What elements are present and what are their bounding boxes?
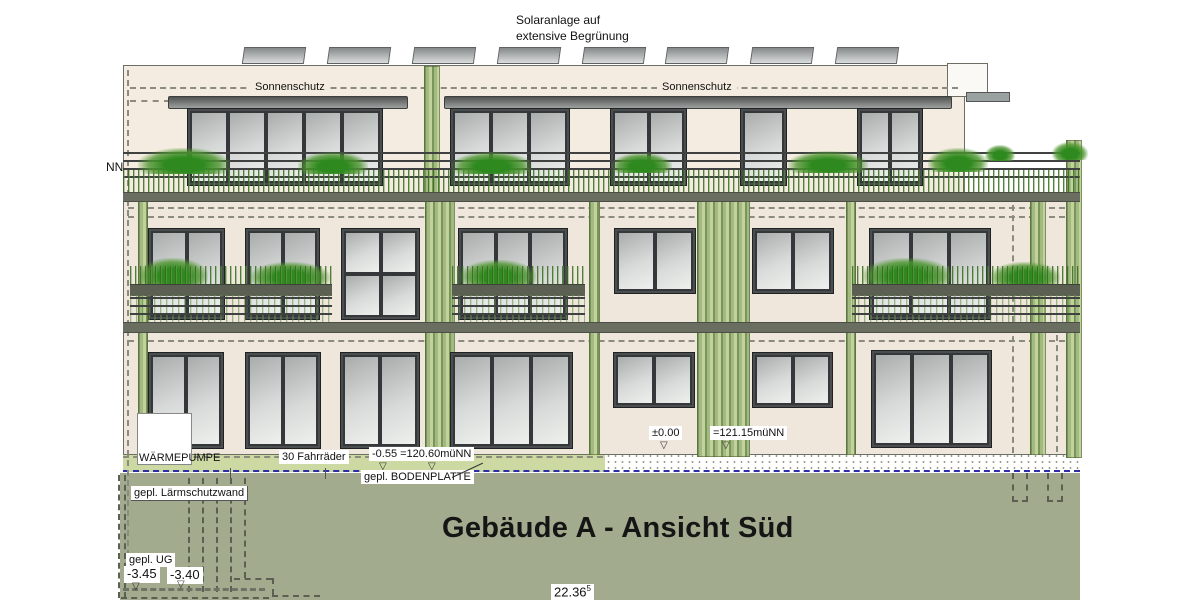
shrub-plant [138,148,230,174]
heat-pump-label: WÄRMEPUMPE [139,451,220,465]
sunshade-label-right: Sonnenschutz [657,80,737,94]
bikes-label: 30 Fahrräder [279,450,349,464]
sunshade-label-left: Sonnenschutz [250,80,330,94]
roof-edge-bar [966,92,1010,102]
ceiling-line [128,216,1075,218]
solar-panel [242,47,306,64]
window [340,352,420,449]
level-zero-label: ±0.00 [649,426,682,440]
roof-note-line1: Solaranlage auf [516,13,600,27]
level-marker-icon: ▽ [177,580,185,590]
level-marker-icon: ▽ [132,582,140,592]
window [450,352,573,449]
level-ground-floor-label: -0.55 =120.60müNN [369,447,474,461]
shrub-plant [928,148,988,172]
solar-panel [750,47,814,64]
balcony-railing [130,297,332,320]
base-plate-label: gepl. BODENPLATTE [361,470,474,484]
noise-wall-label: gepl. Lärmschutzwand [131,486,248,501]
roof-note: Solaranlage auf extensive Begrünung [516,13,629,44]
underground-step [234,578,272,580]
ceiling-line [128,207,1075,209]
window [752,352,833,408]
window [613,352,695,408]
solar-panel [327,47,391,64]
solar-panel [412,47,476,64]
solar-panel [835,47,899,64]
window [341,228,420,320]
foundation-plate [605,452,1080,472]
shrub-plant [1052,142,1088,160]
floor-slab [123,192,1080,202]
window [752,228,834,294]
basement-bottom-line [121,597,269,599]
drawing-title: Gebäude A - Ansicht Süd [442,512,794,545]
window [245,352,321,449]
level-zero-value-label: =121.15müNN [710,426,787,440]
level-basement-a-label: -3.45 [124,566,160,583]
grid-line-right [1056,335,1058,452]
ceiling-line [128,340,1075,342]
underground-step [272,578,274,595]
width-dimension-sup: 5 [587,584,591,593]
left-level-text: NN [106,160,123,176]
width-dimension-label: 22.365 [551,584,594,600]
solar-panel [665,47,729,64]
level-marker-icon: ▽ [722,441,730,451]
elevation-drawing: Solaranlage auf extensive Begrünung Sonn… [0,0,1200,600]
width-dimension-value: 22.36 [554,584,587,599]
floor-slab [123,322,1080,333]
underground-wall-line [118,475,120,598]
ceiling-line [130,100,170,102]
solar-panel [582,47,646,64]
shrub-plant [298,152,368,174]
tick-mark [230,468,231,479]
foundation-footing [1012,473,1028,502]
window [614,228,696,294]
shrub-plant [612,153,672,173]
balcony-railing [452,297,585,320]
basement-level-line [123,588,265,591]
solar-panel [497,47,561,64]
roof-note-line2: extensive Begrünung [516,29,629,43]
shrub-plant [985,145,1015,161]
shrub-plant [452,152,532,174]
window [871,350,992,448]
tick-mark [325,468,326,479]
underground-step [272,595,320,597]
level-marker-icon: ▽ [660,441,668,451]
foundation-blue-line [123,470,1080,472]
foundation-footing [1047,473,1063,502]
grid-line-left [127,70,129,556]
balcony-railing [852,297,1080,320]
shrub-plant [788,151,868,173]
